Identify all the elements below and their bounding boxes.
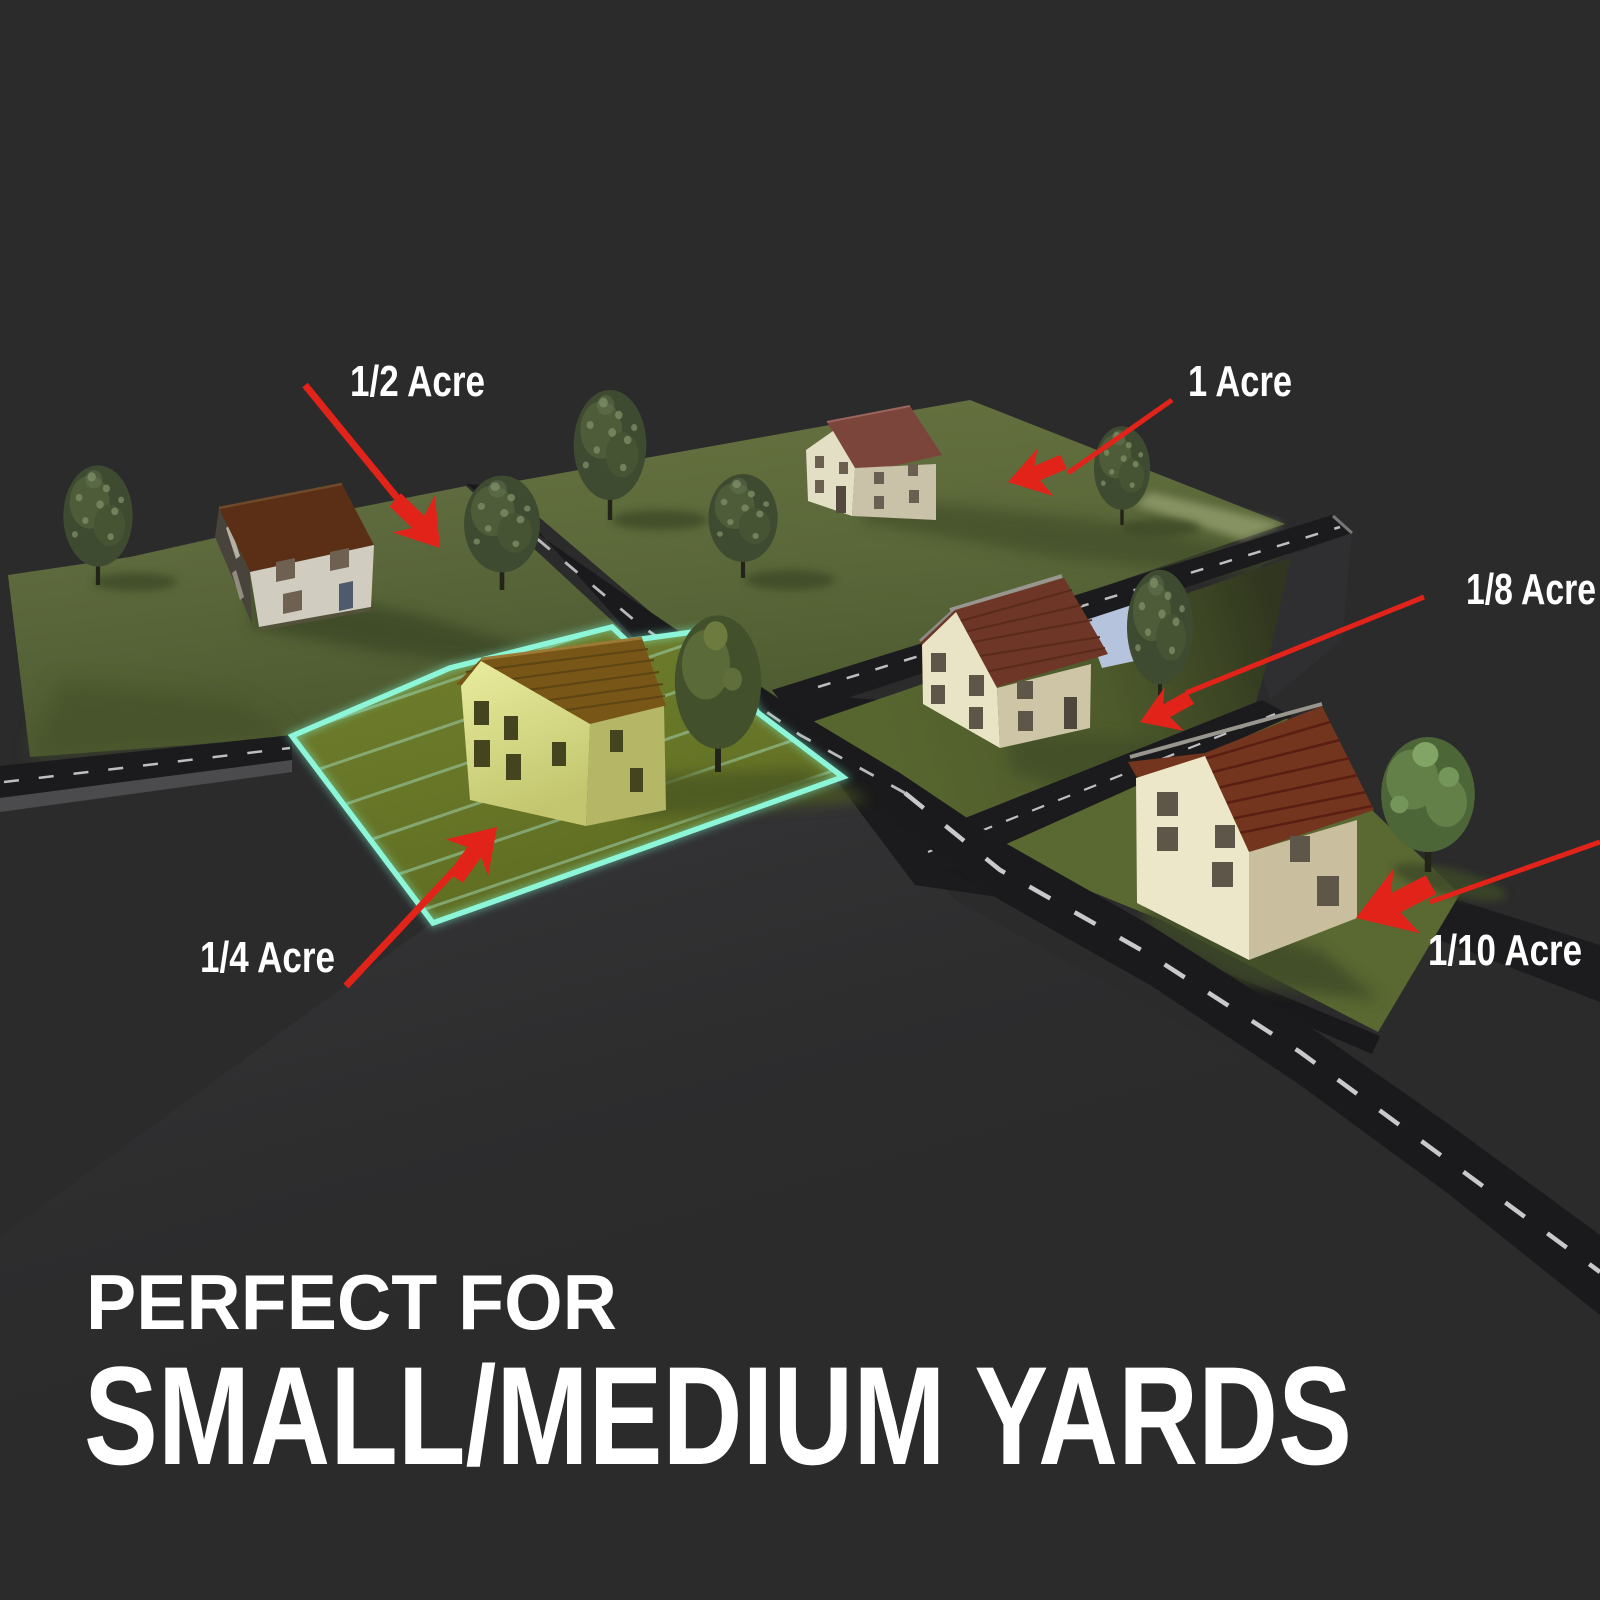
svg-text:1/2 Acre: 1/2 Acre xyxy=(350,357,485,406)
svg-text:1 Acre: 1 Acre xyxy=(1188,357,1292,406)
svg-text:SMALL/MEDIUM YARDS: SMALL/MEDIUM YARDS xyxy=(84,1337,1352,1494)
svg-text:PERFECT FOR: PERFECT FOR xyxy=(86,1258,617,1346)
svg-text:1/10 Acre: 1/10 Acre xyxy=(1428,926,1582,975)
svg-text:1/4 Acre: 1/4 Acre xyxy=(200,933,335,982)
svg-text:1/8 Acre: 1/8 Acre xyxy=(1466,565,1596,614)
